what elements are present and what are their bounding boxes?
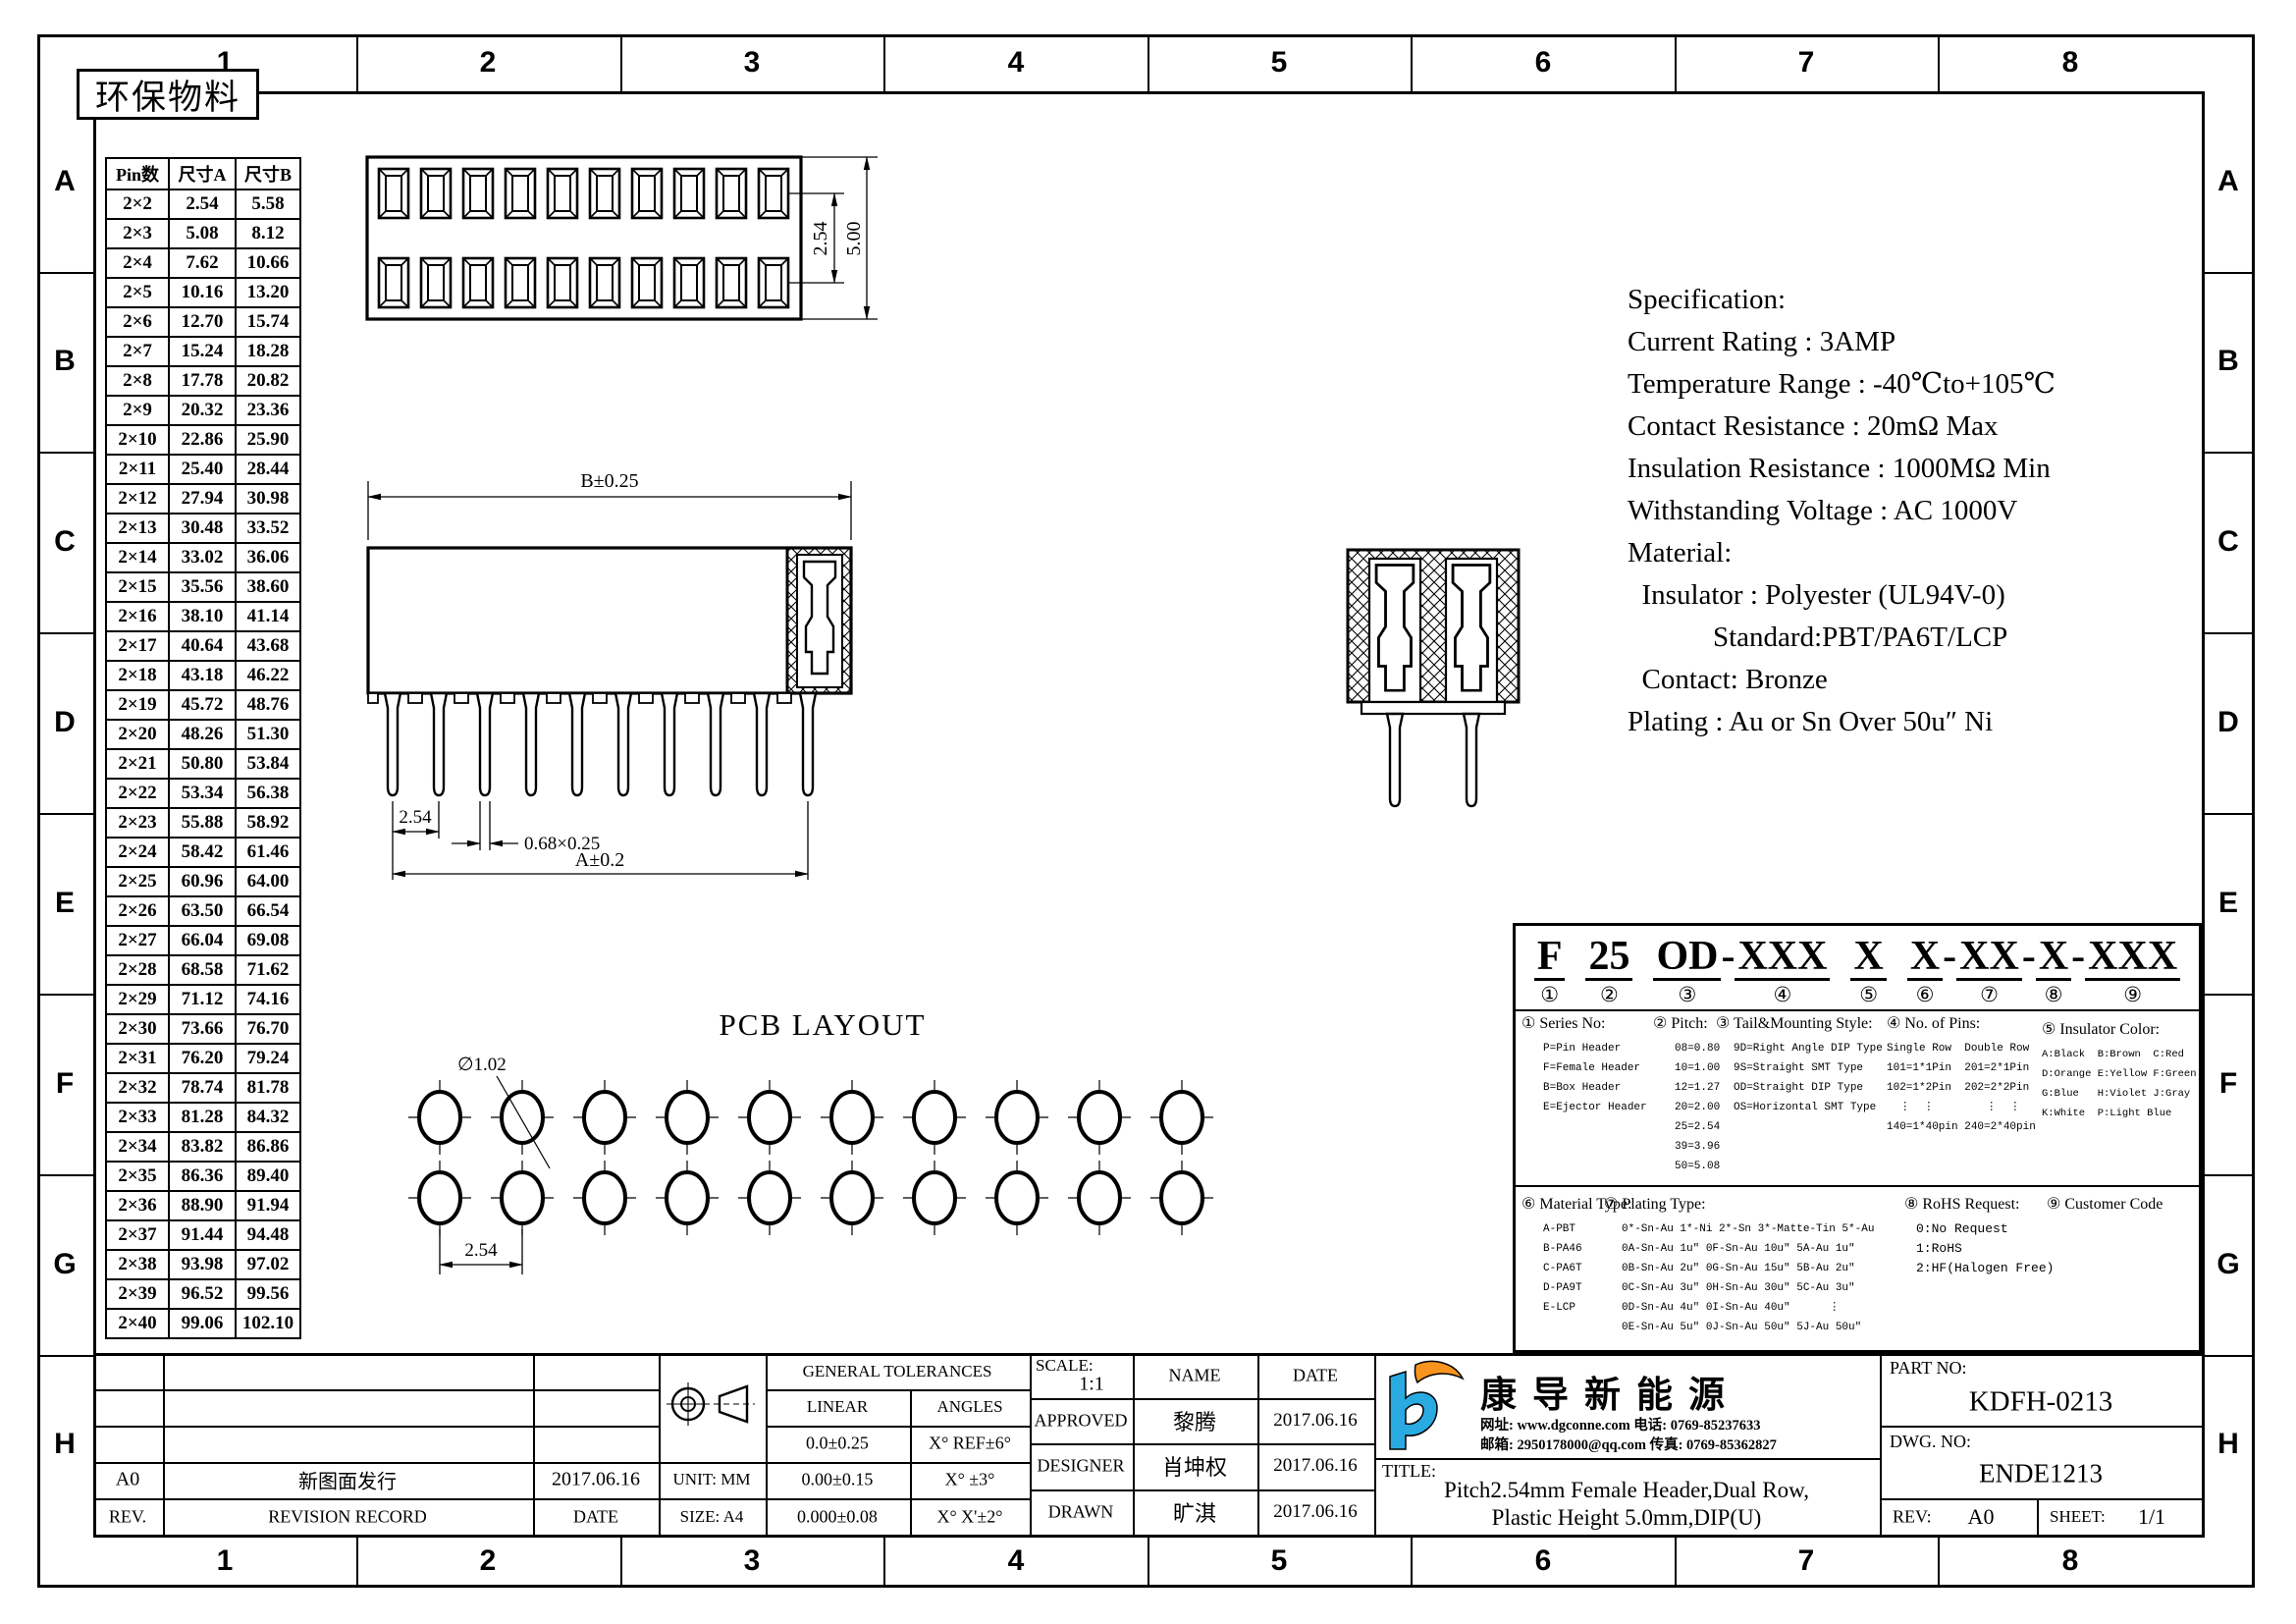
pin-table-cell: 79.24: [236, 1044, 300, 1073]
pin-table-cell: 58.92: [236, 808, 300, 838]
pin-table-row: 2×1227.9430.98: [106, 484, 300, 514]
tb-line: [1880, 1498, 2205, 1500]
pcb-layout-drawing: PCB LAYOUT ∅1.02 2.54: [400, 1000, 1235, 1294]
grid-tick: [1938, 34, 1940, 91]
pin-table-row: 2×2560.9664.00: [106, 867, 300, 896]
pin-table-cell: 2×23: [106, 808, 169, 838]
pin-table-cell: 66.04: [169, 926, 236, 955]
grid-tick: [1411, 1535, 1413, 1588]
tb-line: [1374, 1458, 1880, 1460]
pin-table-cell: 20.82: [236, 366, 300, 396]
grid-col-label: 1: [217, 1544, 234, 1578]
drawing-sheet: 1 2 3 4 5 6 7 8 1 2 3 4 5 6 7 8 A B C D …: [0, 0, 2296, 1624]
grid-col-label: 8: [2062, 46, 2079, 80]
grid-tick: [2202, 272, 2255, 274]
revision-record: 新图面发行: [298, 1466, 397, 1494]
grid-row-label: A: [54, 165, 76, 198]
pin-table-cell: 76.70: [236, 1014, 300, 1044]
title-label: TITLE:: [1382, 1461, 1436, 1482]
pin-table-cell: 2×3: [106, 219, 169, 248]
date-header: DATE: [1293, 1366, 1338, 1386]
pin-table-cell: 89.40: [236, 1162, 300, 1191]
pin-table-cell: 38.60: [236, 572, 300, 602]
pin-table-cell: 45.72: [169, 690, 236, 720]
pin-table-cell: 43.68: [236, 631, 300, 661]
pin-table-cell: 73.66: [169, 1014, 236, 1044]
unit-label: UNIT: MM: [673, 1470, 751, 1489]
pin-table-cell: 2×24: [106, 838, 169, 867]
pin-table-row: 2×35.088.12: [106, 219, 300, 248]
grid-tick: [2202, 1174, 2255, 1176]
dwg-no-label: DWG. NO:: [1890, 1432, 1971, 1452]
pin-table-cell: 10.66: [236, 248, 300, 278]
part-code-separator: -: [2022, 935, 2036, 978]
grid-col-label: 4: [1008, 46, 1025, 80]
tb-line: [1030, 1443, 1374, 1445]
grid-tick: [883, 34, 885, 91]
tb-line: [766, 1426, 1030, 1428]
grid-col-label: 8: [2062, 1544, 2079, 1578]
legend-material-lines: A-PBT B-PA46 C-PA6T D-PA9T E-LCP: [1543, 1219, 1582, 1318]
pin-table-cell: 40.64: [169, 631, 236, 661]
pin-table-row: 2×2253.3456.38: [106, 779, 300, 808]
rev-col-header: REV.: [109, 1507, 146, 1528]
grid-tick: [2202, 452, 2255, 454]
pin-table-row: 2×3893.9897.02: [106, 1250, 300, 1279]
grid-tick: [37, 1355, 93, 1357]
pin-table-row: 2×2458.4261.46: [106, 838, 300, 867]
pin-table-cell: 2×26: [106, 896, 169, 926]
pin-table-cell: 30.48: [169, 514, 236, 543]
pin-table-row: 2×2868.5871.62: [106, 955, 300, 985]
pin-table-cell: 53.34: [169, 779, 236, 808]
grid-tick: [2202, 994, 2255, 996]
pin-table-cell: 2×29: [106, 985, 169, 1014]
designer-label: DESIGNER: [1038, 1456, 1125, 1477]
designer-name: 肖坤权: [1162, 1450, 1227, 1482]
legend-tail-lines: 9D=Right Angle DIP Type 9S=Straight SMT …: [1734, 1039, 1883, 1117]
pin-table-row: 2×3483.8286.86: [106, 1132, 300, 1162]
pin-table-cell: 15.24: [169, 337, 236, 366]
grid-row-label: B: [54, 345, 76, 378]
tolerance-angle-3: X° X'±2°: [936, 1507, 1002, 1528]
company-contact-line2: 邮箱: 2950178000@qq.com 传真: 0769-85362827: [1480, 1434, 1777, 1454]
revision-rev: A0: [116, 1469, 139, 1491]
grid-row-label: D: [2217, 706, 2239, 739]
legend-customer-head: ⑨ Customer Code: [2047, 1194, 2163, 1214]
pin-table-cell: 66.54: [236, 896, 300, 926]
pin-table-row: 2×612.7015.74: [106, 307, 300, 337]
part-code: F① 25② OD③-XXX④ X⑤ X⑥-XX⑦-X⑧-XXX⑨: [1513, 935, 2202, 1005]
pin-table-cell: 74.16: [236, 985, 300, 1014]
pin-table-row: 2×715.2418.28: [106, 337, 300, 366]
pin-table-cell: 76.20: [169, 1044, 236, 1073]
grid-col-label: 6: [1535, 1544, 1552, 1578]
pin-table-cell: 33.02: [169, 543, 236, 572]
part-code-segment: 25②: [1585, 935, 1632, 1005]
grid-row-label: F: [56, 1067, 74, 1101]
grid-tick: [37, 632, 93, 634]
specification-text: Specification: Current Rating : 3AMP Tem…: [1628, 279, 2056, 743]
part-code-separator: [1830, 935, 1850, 978]
pin-table-cell: 35.56: [169, 572, 236, 602]
grid-col-label: 5: [1271, 1544, 1288, 1578]
legend-plating-lines: 0*-Sn-Au 1*-Ni 2*-Sn 3*-Matte-Tin 5*-Au …: [1622, 1219, 1874, 1337]
pin-table-cell: 61.46: [236, 838, 300, 867]
pin-table-cell: 96.52: [169, 1279, 236, 1309]
grid-tick: [620, 34, 622, 91]
grid-col-label: 6: [1535, 46, 1552, 80]
pin-table-cell: 63.50: [169, 896, 236, 926]
pin-table-cell: 81.28: [169, 1103, 236, 1132]
approved-name: 黎腾: [1173, 1405, 1216, 1436]
pin-table-cell: 2×5: [106, 278, 169, 307]
projection-symbol-icon: [665, 1373, 759, 1435]
tb-line: [1374, 1353, 1376, 1535]
tb-line: [1030, 1398, 1374, 1400]
side-view-drawing: B±0.25 2.54: [355, 430, 905, 890]
grid-row-label: H: [54, 1428, 76, 1461]
name-header: NAME: [1169, 1366, 1221, 1386]
pin-table-cell: 2×7: [106, 337, 169, 366]
pin-table-row: 2×1945.7248.76: [106, 690, 300, 720]
part-code-segment: X⑤: [1850, 935, 1886, 1005]
pin-table-cell: 25.90: [236, 425, 300, 455]
grid-tick: [620, 1535, 622, 1588]
pin-table-cell: 48.76: [236, 690, 300, 720]
pin-table-cell: 86.86: [236, 1132, 300, 1162]
tb-line: [1030, 1489, 1374, 1491]
part-code-separator: -: [2071, 935, 2085, 978]
pin-table-cell: 5.08: [169, 219, 236, 248]
pin-table-cell: 13.20: [236, 278, 300, 307]
pin-table-cell: 60.96: [169, 867, 236, 896]
tb-line: [93, 1462, 1030, 1464]
pin-table-cell: 2.54: [169, 189, 236, 219]
pin-table-cell: 17.78: [169, 366, 236, 396]
grid-tick: [1938, 1535, 1940, 1588]
legend-pins-lines: Single Row Double Row 101=1*1Pin 201=2*1…: [1887, 1039, 2036, 1137]
grid-row-label: A: [2217, 165, 2239, 198]
legend-plating-head: ⑦ Plating Type:: [1604, 1194, 1706, 1214]
dim-row-pitch: 2.54: [810, 222, 831, 256]
pin-table-cell: 2×25: [106, 867, 169, 896]
pin-table-cell: 93.98: [169, 1250, 236, 1279]
pin-table-cell: 23.36: [236, 396, 300, 425]
grid-tick: [2202, 632, 2255, 634]
pin-table-cell: 99.06: [169, 1309, 236, 1338]
pin-table-cell: 2×37: [106, 1220, 169, 1250]
pin-table-cell: 30.98: [236, 484, 300, 514]
dim-width: B±0.25: [580, 470, 638, 492]
pin-table-header-row: Pin数 尺寸A 尺寸B: [106, 158, 300, 189]
part-no-label: PART NO:: [1890, 1358, 1966, 1379]
tolerances-angles-header: ANGLES: [936, 1397, 1002, 1417]
approved-date: 2017.06.16: [1273, 1410, 1358, 1432]
pin-table-row: 2×3278.7481.78: [106, 1073, 300, 1103]
company-logo-icon: [1382, 1359, 1472, 1452]
pin-table-cell: 2×13: [106, 514, 169, 543]
grid-row-label: E: [55, 887, 75, 920]
part-code-separator: -: [1943, 935, 1956, 978]
grid-col-label: 7: [1798, 46, 1815, 80]
pin-table-cell: 94.48: [236, 1220, 300, 1250]
tb-line: [766, 1353, 768, 1535]
grid-row-label: D: [54, 706, 76, 739]
pin-table-cell: 91.44: [169, 1220, 236, 1250]
pin-table-cell: 27.94: [169, 484, 236, 514]
pin-table-row: 2×3688.9091.94: [106, 1191, 300, 1220]
pin-table-cell: 88.90: [169, 1191, 236, 1220]
part-code-segment: X⑥: [1907, 935, 1943, 1005]
company-name: 康导新能源: [1480, 1365, 1740, 1418]
pin-table-cell: 84.32: [236, 1103, 300, 1132]
drawn-name: 旷淇: [1173, 1496, 1216, 1528]
pin-table-row: 2×3073.6676.70: [106, 1014, 300, 1044]
pin-table-cell: 2×30: [106, 1014, 169, 1044]
pin-table-row: 2×2971.1274.16: [106, 985, 300, 1014]
pin-table-cell: 25.40: [169, 455, 236, 484]
grid-tick: [356, 1535, 358, 1588]
dim-pcb-pitch: 2.54: [464, 1240, 498, 1261]
grid-col-label: 3: [744, 46, 761, 80]
pin-table-row: 2×1740.6443.68: [106, 631, 300, 661]
pin-table-cell: 2×2: [106, 189, 169, 219]
grid-col-label: 5: [1271, 46, 1288, 80]
part-code-divider: [1513, 1009, 2202, 1011]
grid-row-label: F: [2219, 1067, 2237, 1101]
legend-color-lines: A:Black B:Brown C:Red D:Orange E:Yellow …: [2042, 1045, 2197, 1123]
pin-table-cell: 5.58: [236, 189, 300, 219]
grid-col-label: 4: [1008, 1544, 1025, 1578]
dim-pin-size-lines: [452, 801, 518, 850]
pin-table-cell: 2×20: [106, 720, 169, 749]
legend-color-head: ⑤ Insulator Color:: [2042, 1019, 2160, 1039]
pin-table-cell: 83.82: [169, 1132, 236, 1162]
eco-material-label: 环保物料: [77, 69, 259, 120]
pin-table-row: 2×3176.2079.24: [106, 1044, 300, 1073]
grid-tick: [37, 1174, 93, 1176]
pin-table-cell: 2×12: [106, 484, 169, 514]
pcb-layout-title: PCB LAYOUT: [720, 1007, 927, 1042]
pin-table-cell: 68.58: [169, 955, 236, 985]
grid-tick: [1148, 1535, 1149, 1588]
pin-table-cell: 8.12: [236, 219, 300, 248]
tb-line: [766, 1389, 1030, 1391]
pin-table-cell: 55.88: [169, 808, 236, 838]
pin-table-cell: 12.70: [169, 307, 236, 337]
pin-table-row: 2×510.1613.20: [106, 278, 300, 307]
pin-table-cell: 2×39: [106, 1279, 169, 1309]
pin-table-cell: 2×10: [106, 425, 169, 455]
sheet-label: SHEET:: [2050, 1507, 2106, 1527]
grid-row-label: G: [2216, 1248, 2239, 1281]
pin-table-row: 2×2150.8053.84: [106, 749, 300, 779]
size-label: SIZE: A4: [680, 1507, 744, 1527]
pin-table-header: 尺寸A: [169, 158, 236, 189]
part-code-segment: OD③: [1653, 935, 1721, 1005]
part-code-segment: XXX④: [1735, 935, 1830, 1005]
grid-tick: [1675, 34, 1677, 91]
pin-table-cell: 2×40: [106, 1309, 169, 1338]
pin-table-row: 2×920.3223.36: [106, 396, 300, 425]
part-code-separator: [1565, 935, 1585, 978]
legend-tail-head: ③ Tail&Mounting Style:: [1716, 1013, 1873, 1033]
grid-tick: [1411, 34, 1413, 91]
pin-table-cell: 2×19: [106, 690, 169, 720]
grid-row-label: E: [2218, 887, 2238, 920]
legend-rohs-head: ⑧ RoHS Request:: [1904, 1194, 2019, 1214]
grid-row-label: B: [2217, 345, 2239, 378]
pin-table-row: 2×2766.0469.08: [106, 926, 300, 955]
pin-table-cell: 36.06: [236, 543, 300, 572]
pin-table-row: 2×1433.0236.06: [106, 543, 300, 572]
pin-table-cell: 2×22: [106, 779, 169, 808]
pin-table-row: 2×3381.2884.32: [106, 1103, 300, 1132]
pin-table-cell: 2×32: [106, 1073, 169, 1103]
rev-label: REV:: [1893, 1507, 1932, 1528]
part-code-separator: [1632, 935, 1653, 978]
pin-table-row: 2×1843.1846.22: [106, 661, 300, 690]
pin-table-cell: 2×21: [106, 749, 169, 779]
legend-pins-head: ④ No. of Pins:: [1887, 1013, 1980, 1033]
drawn-date: 2017.06.16: [1273, 1501, 1358, 1523]
grid-tick: [2202, 813, 2255, 815]
pin-table-row: 2×1125.4028.44: [106, 455, 300, 484]
dim-hole-dia: ∅1.02: [457, 1055, 507, 1075]
pin-table-row: 2×1535.5638.60: [106, 572, 300, 602]
tolerance-linear-2: 0.00±0.15: [802, 1470, 874, 1490]
pin-table-cell: 2×14: [106, 543, 169, 572]
part-code-segment: X⑧: [2036, 935, 2071, 1005]
pin-table-cell: 2×6: [106, 307, 169, 337]
part-code-separator: -: [1721, 935, 1735, 978]
pin-table-cell: 46.22: [236, 661, 300, 690]
tb-line: [93, 1389, 659, 1391]
pin-count-table: Pin数 尺寸A 尺寸B 2×22.545.582×35.088.122×47.…: [105, 157, 301, 1339]
tb-line: [659, 1353, 661, 1535]
pin-table-row: 2×3586.3689.40: [106, 1162, 300, 1191]
approved-label: APPROVED: [1034, 1411, 1127, 1432]
grid-row-label: G: [53, 1248, 76, 1281]
part-code-segment: XXX⑨: [2085, 935, 2180, 1005]
part-code-segment: F①: [1534, 935, 1566, 1005]
section-view-drawing: [1340, 535, 1526, 820]
pin-table-cell: 78.74: [169, 1073, 236, 1103]
part-no-value: KDFH-0213: [1969, 1386, 2113, 1419]
pin-table-cell: 33.52: [236, 514, 300, 543]
pin-table-cell: 51.30: [236, 720, 300, 749]
pin-table-cell: 2×8: [106, 366, 169, 396]
pin-table-cell: 2×33: [106, 1103, 169, 1132]
grid-tick: [1148, 34, 1149, 91]
drawing-title-line2: Plastic Height 5.0mm,DIP(U): [1492, 1505, 1762, 1531]
pin-table-cell: 2×27: [106, 926, 169, 955]
tb-line: [2037, 1498, 2039, 1535]
pin-table-cell: 41.14: [236, 602, 300, 631]
pin-table-cell: 2×11: [106, 455, 169, 484]
dim-pin-pitch: 2.54: [399, 807, 432, 828]
pin-table-cell: 2×28: [106, 955, 169, 985]
pin-table-cell: 2×18: [106, 661, 169, 690]
tb-line: [1880, 1426, 2205, 1428]
pin-table-cell: 2×4: [106, 248, 169, 278]
grid-tick: [883, 1535, 885, 1588]
pin-table-cell: 58.42: [169, 838, 236, 867]
legend-rohs-lines: 0:No Request 1:RoHS 2:HF(Halogen Free): [1916, 1219, 2054, 1278]
pin-table-cell: 91.94: [236, 1191, 300, 1220]
tb-line: [163, 1353, 165, 1535]
pin-table-cell: 2×9: [106, 396, 169, 425]
revision-date-header: DATE: [573, 1507, 618, 1528]
pin-table-row: 2×3791.4494.48: [106, 1220, 300, 1250]
pin-table-cell: 48.26: [169, 720, 236, 749]
pin-table-cell: 18.28: [236, 337, 300, 366]
grid-tick: [37, 994, 93, 996]
grid-row-label: C: [2217, 525, 2239, 559]
legend-pitch-head: ② Pitch:: [1653, 1013, 1708, 1033]
tolerance-angle-2: X° ±3°: [945, 1470, 995, 1490]
pin-table-row: 2×2048.2651.30: [106, 720, 300, 749]
pin-table-row: 2×47.6210.66: [106, 248, 300, 278]
pin-table-row: 2×3996.5299.56: [106, 1279, 300, 1309]
pin-table-cell: 2×31: [106, 1044, 169, 1073]
grid-tick: [37, 452, 93, 454]
sheet-value: 1/1: [2138, 1504, 2165, 1530]
pin-table-cell: 2×15: [106, 572, 169, 602]
part-code-separator: [1887, 935, 1907, 978]
company-contact-line1: 网址: www.dgconne.com 电话: 0769-85237633: [1480, 1414, 1761, 1435]
tb-line: [93, 1426, 659, 1428]
tolerance-linear-3: 0.000±0.08: [797, 1507, 878, 1528]
pin-table-cell: 20.32: [169, 396, 236, 425]
dwg-no-value: ENDE1213: [1979, 1459, 2103, 1489]
pin-table-cell: 102.10: [236, 1309, 300, 1338]
pin-table-cell: 64.00: [236, 867, 300, 896]
drawn-label: DRAWN: [1048, 1502, 1114, 1523]
pin-table-cell: 97.02: [236, 1250, 300, 1279]
grid-col-label: 7: [1798, 1544, 1815, 1578]
dim-span: A±0.2: [575, 849, 624, 871]
grid-tick: [1675, 1535, 1677, 1588]
pin-table-cell: 86.36: [169, 1162, 236, 1191]
revision-date: 2017.06.16: [552, 1469, 640, 1491]
tolerances-title: GENERAL TOLERANCES: [803, 1362, 992, 1381]
pin-table-row: 2×1638.1041.14: [106, 602, 300, 631]
revision-record-header: REVISION RECORD: [268, 1507, 427, 1528]
pin-table-row: 2×22.545.58: [106, 189, 300, 219]
pin-table-cell: 56.38: [236, 779, 300, 808]
pin-table-cell: 38.10: [169, 602, 236, 631]
pcb-holes: [408, 1080, 1213, 1235]
pin-table-cell: 69.08: [236, 926, 300, 955]
drawing-title-line1: Pitch2.54mm Female Header,Dual Row,: [1444, 1478, 1809, 1503]
grid-tick: [356, 34, 358, 91]
pin-table-cell: 15.74: [236, 307, 300, 337]
designer-date: 2017.06.16: [1273, 1455, 1358, 1477]
part-code-segment: XX⑦: [1956, 935, 2022, 1005]
dim-total-height: 5.00: [843, 222, 865, 256]
pin-table-row: 2×1330.4833.52: [106, 514, 300, 543]
part-code-divider: [1513, 1185, 2202, 1187]
pin-table-cell: 22.86: [169, 425, 236, 455]
pin-table-cell: 2×38: [106, 1250, 169, 1279]
legend-pitch-lines: 08=0.80 10=1.00 12=1.27 20=2.00 25=2.54 …: [1675, 1039, 1720, 1176]
tolerance-angle-1: X° REF±6°: [929, 1434, 1011, 1454]
pin-table-cell: 43.18: [169, 661, 236, 690]
pin-table-cell: 2×16: [106, 602, 169, 631]
pin-table-row: 2×2355.8858.92: [106, 808, 300, 838]
